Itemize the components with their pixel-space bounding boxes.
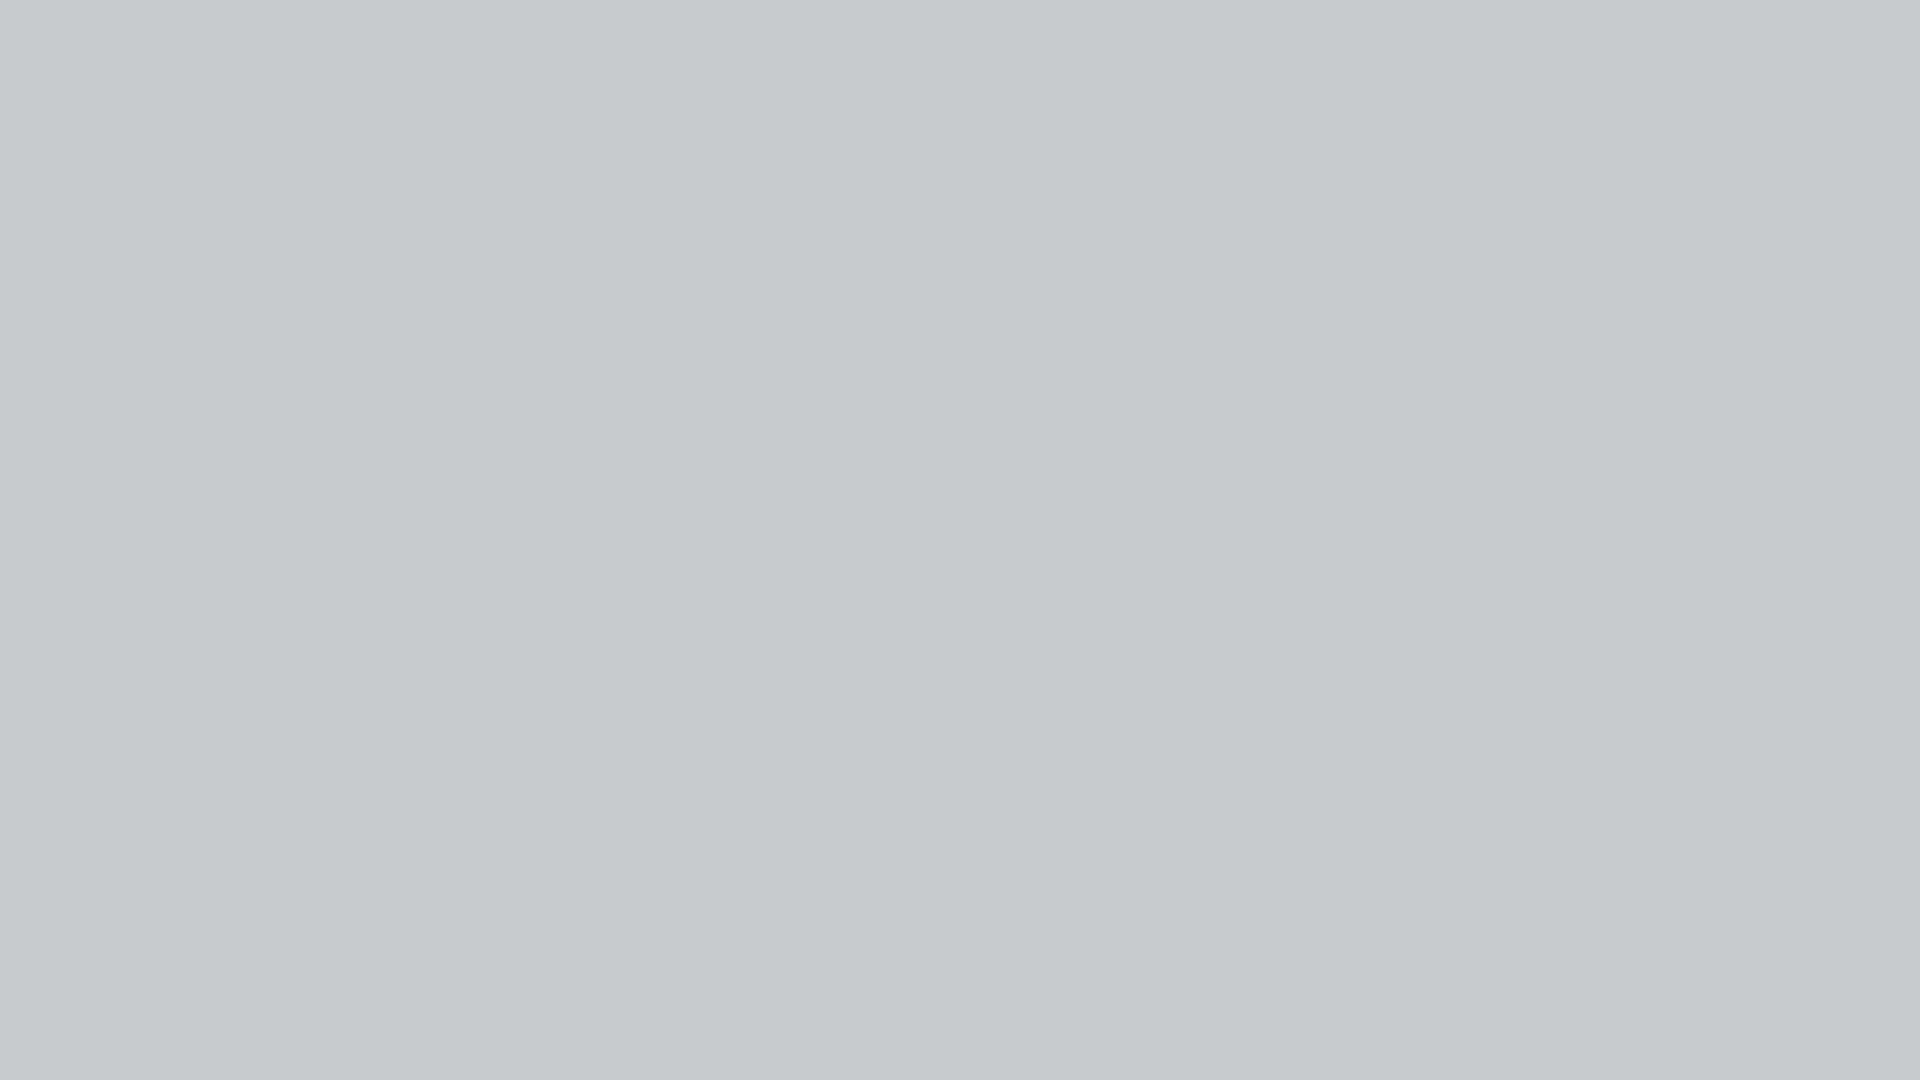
factory-aerial-render: [0, 0, 1920, 1080]
factory-aerial-scene: [0, 0, 1920, 1080]
